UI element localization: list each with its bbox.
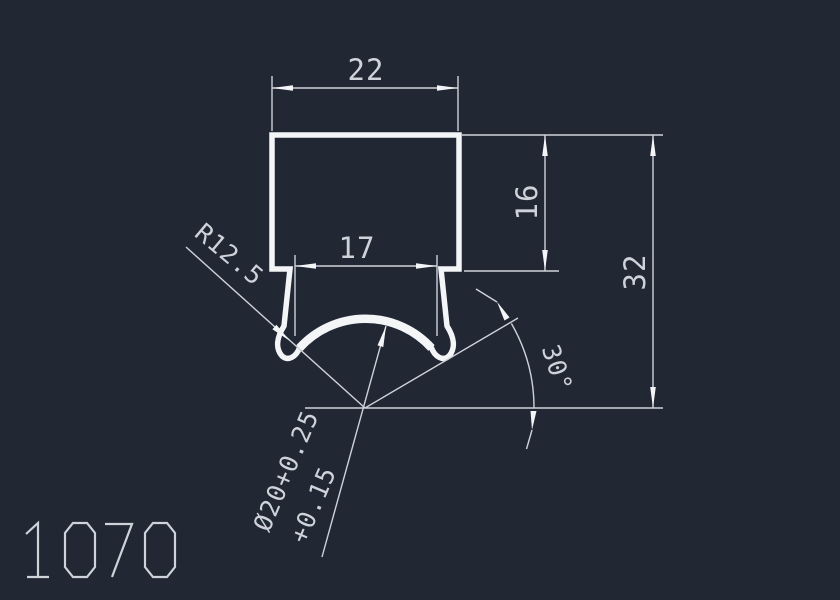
arrowhead-top <box>542 135 548 156</box>
dim-diameter-leader[interactable]: Ø20+0.25 +0.15 <box>248 326 386 557</box>
dim-text-32: 32 <box>618 254 652 291</box>
dim-text-radius: R12.5 <box>189 218 269 292</box>
angle-ray <box>365 318 518 408</box>
angle-arrow-tail-bottom <box>527 430 533 449</box>
arrowhead-bottom <box>531 411 537 430</box>
part-number-digit <box>65 523 95 577</box>
part-number-digit <box>105 524 132 577</box>
dim-text-angle: 30° <box>536 341 578 396</box>
arrowhead-left <box>272 85 293 91</box>
arrowhead-bottom <box>650 387 656 408</box>
dim-height-upper[interactable]: 16 <box>464 135 559 271</box>
part-number-digit <box>26 523 49 577</box>
arrowhead <box>378 326 387 347</box>
profile-bore-arc <box>300 319 432 348</box>
dim-width-top[interactable]: 22 <box>272 53 458 131</box>
part-number-label <box>26 523 175 577</box>
leader-line <box>322 326 386 557</box>
dim-text-22: 22 <box>348 53 385 87</box>
arrowhead-top <box>650 135 656 156</box>
angle-arrow-tail-top <box>476 289 497 302</box>
arrowhead-top <box>497 302 510 321</box>
dim-angle[interactable]: 30° <box>365 289 578 449</box>
arrowhead-bottom <box>542 250 548 271</box>
cad-drawing-canvas[interactable]: 22 17 16 32 30° R12. <box>0 0 840 600</box>
dim-text-17: 17 <box>339 231 376 265</box>
arrowhead-right <box>416 263 437 269</box>
arrowhead-right <box>437 85 458 91</box>
angle-arc <box>511 324 534 409</box>
dim-text-16: 16 <box>510 184 544 221</box>
part-number-digit <box>145 523 175 577</box>
arrowhead-left <box>295 263 316 269</box>
